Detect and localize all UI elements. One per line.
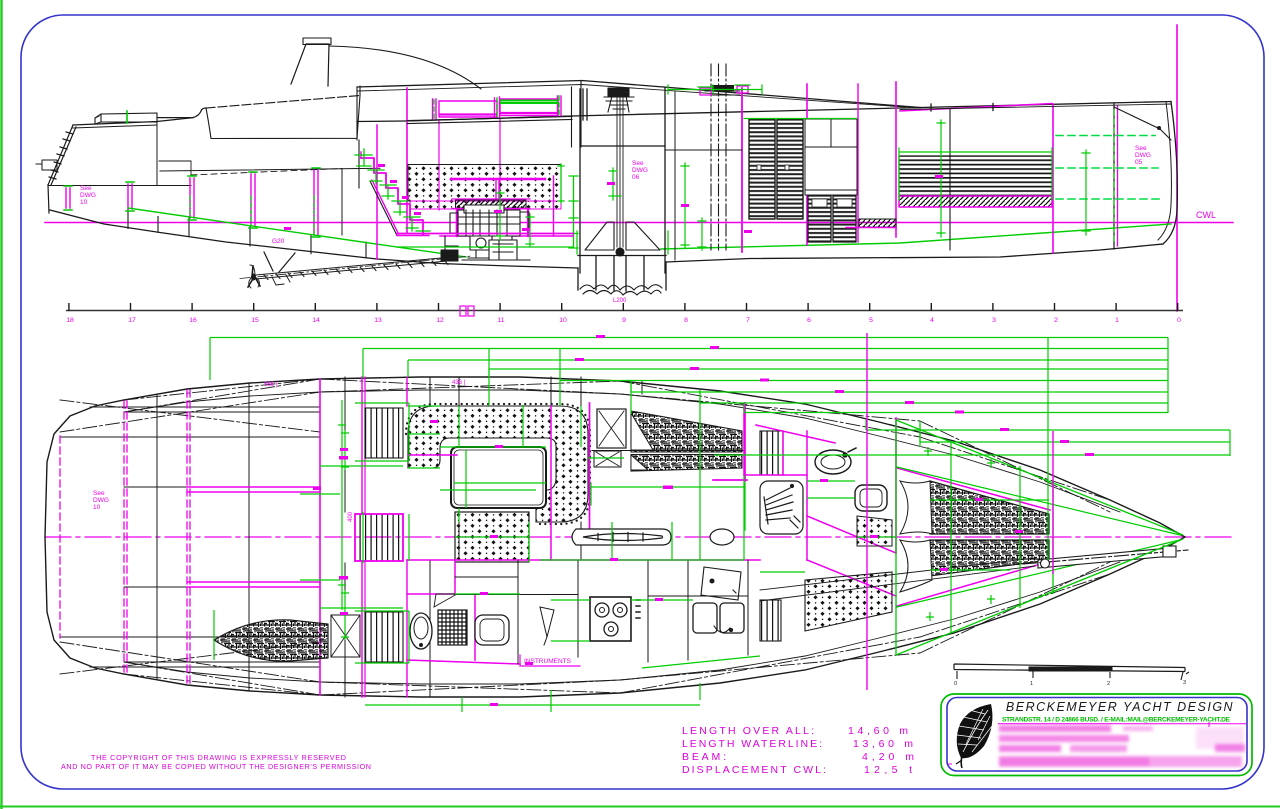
svg-text:3: 3	[992, 317, 996, 324]
svg-text:DWG: DWG	[1135, 152, 1151, 159]
svg-text:12: 12	[436, 317, 444, 324]
svg-text:13: 13	[374, 317, 382, 324]
svg-text:L200: L200	[613, 298, 627, 304]
svg-text:G20: G20	[272, 238, 285, 245]
svg-text:10: 10	[559, 317, 567, 324]
svg-text:LENGTH OVER ALL:: LENGTH OVER ALL:	[682, 725, 814, 737]
svg-text:DWG: DWG	[632, 167, 648, 174]
svg-text:See: See	[80, 185, 92, 192]
svg-text:BERCKEMEYER YACHT DESIGN: BERCKEMEYER YACHT DESIGN	[1006, 700, 1234, 714]
svg-text:THE COPYRIGHT OF THIS DRAWING: THE COPYRIGHT OF THIS DRAWING IS EXPRESS…	[91, 753, 346, 762]
svg-text:AND NO PART OF IT MAY BE COPIE: AND NO PART OF IT MAY BE COPIED WITHOUT …	[61, 762, 371, 771]
svg-text:3: 3	[1183, 680, 1186, 686]
svg-text:16: 16	[189, 317, 197, 324]
svg-text:CWL: CWL	[1196, 210, 1216, 220]
svg-text:15: 15	[251, 317, 259, 324]
svg-text:DWG: DWG	[93, 497, 109, 504]
svg-text:11: 11	[497, 317, 504, 324]
svg-text:1: 1	[1115, 317, 1119, 324]
svg-text:10: 10	[93, 504, 101, 511]
svg-text:400: 400	[348, 511, 354, 522]
svg-text:9: 9	[622, 317, 626, 324]
svg-text:06: 06	[632, 174, 640, 181]
svg-text:14,60 m: 14,60 m	[848, 725, 908, 737]
svg-text:See: See	[93, 490, 105, 497]
svg-text:13,60 m: 13,60 m	[853, 738, 913, 750]
svg-text:2: 2	[1107, 681, 1110, 687]
svg-text:BEAM:: BEAM:	[682, 751, 726, 763]
svg-text:See: See	[1135, 145, 1147, 152]
svg-text:0: 0	[954, 681, 957, 687]
svg-text:DWG: DWG	[80, 192, 96, 199]
svg-text:LENGTH WATERLINE:: LENGTH WATERLINE:	[682, 738, 822, 750]
svg-text:0: 0	[1177, 317, 1181, 324]
svg-text:566 |: 566 |	[264, 382, 278, 388]
svg-text:DISPLACEMENT CWL:: DISPLACEMENT CWL:	[682, 764, 826, 776]
svg-text:05: 05	[1135, 159, 1143, 166]
svg-text:4: 4	[930, 317, 934, 324]
svg-text:8: 8	[684, 317, 688, 324]
svg-text:10: 10	[80, 199, 88, 206]
svg-text:STRANDSTR. 14 / D 24866 BUSD.: STRANDSTR. 14 / D 24866 BUSD. / E-MAIL:M…	[1002, 717, 1231, 724]
svg-text:1: 1	[1030, 681, 1033, 687]
svg-text:7: 7	[746, 317, 750, 324]
svg-text:18: 18	[66, 317, 74, 324]
svg-text:6: 6	[807, 317, 811, 324]
svg-text:17: 17	[128, 317, 136, 324]
svg-text:436 |: 436 |	[452, 380, 466, 386]
svg-text:See: See	[632, 160, 644, 167]
svg-text:14: 14	[312, 317, 320, 324]
svg-text:2: 2	[1054, 317, 1058, 324]
svg-text:5: 5	[869, 317, 873, 324]
